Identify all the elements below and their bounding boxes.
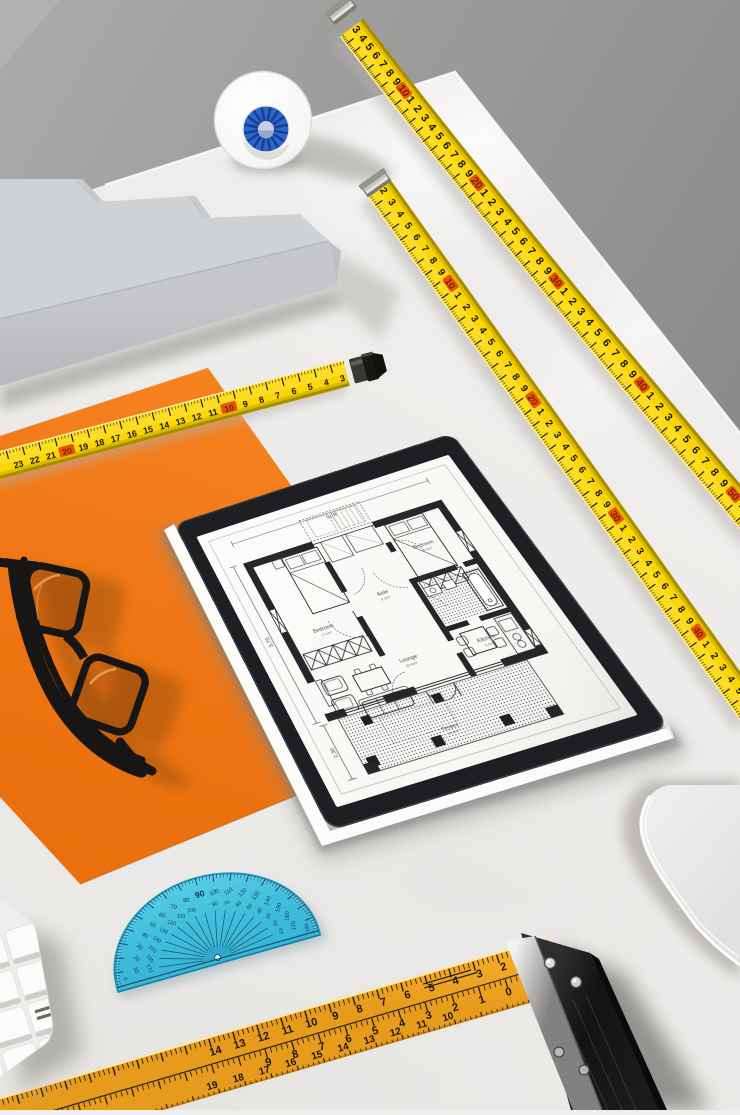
svg-text:110: 110 (177, 913, 186, 920)
svg-text:10: 10 (279, 928, 286, 934)
svg-text:170: 170 (291, 920, 298, 930)
svg-text:80: 80 (183, 898, 190, 905)
svg-text:160: 160 (285, 911, 292, 921)
svg-text:100: 100 (187, 907, 196, 914)
svg-text:70: 70 (170, 904, 177, 910)
svg-text:20: 20 (273, 920, 279, 926)
